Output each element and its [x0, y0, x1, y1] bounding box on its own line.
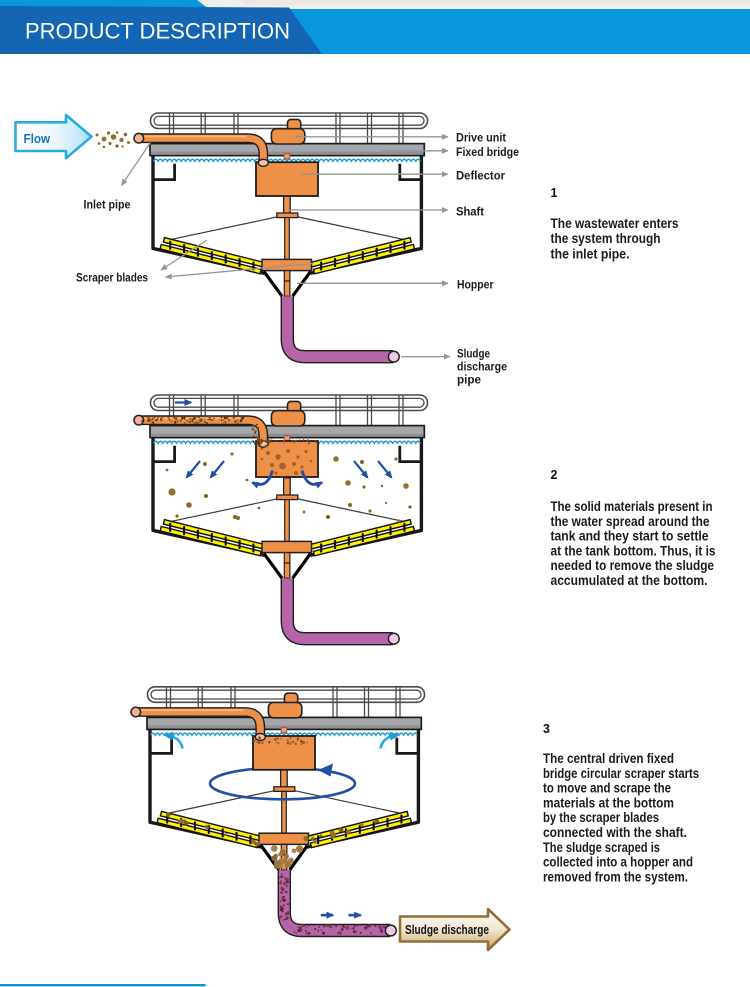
svg-text:The central driven fixed: The central driven fixed	[543, 751, 674, 766]
svg-text:at the tank bottom. Thus, it i: at the tank bottom. Thus, it is	[551, 543, 716, 558]
svg-text:Inlet pipe: Inlet pipe	[84, 197, 131, 211]
svg-text:the inlet pipe.: the inlet pipe.	[551, 246, 630, 261]
svg-text:Scraper blades: Scraper blades	[76, 270, 148, 284]
svg-text:discharge: discharge	[457, 360, 507, 374]
svg-text:The sludge scraped is: The sludge scraped is	[543, 840, 660, 855]
svg-text:collected into a hopper and: collected into a hopper and	[543, 855, 693, 870]
svg-text:Sludge: Sludge	[457, 347, 490, 361]
svg-text:Hopper: Hopper	[457, 278, 494, 292]
svg-text:1: 1	[551, 186, 558, 200]
svg-text:bridge circular scraper starts: bridge circular scraper starts	[543, 766, 699, 781]
svg-text:removed from the system.: removed from the system.	[543, 869, 688, 884]
svg-text:3: 3	[543, 722, 550, 736]
svg-text:2: 2	[551, 468, 558, 482]
svg-text:The wastewater enters: The wastewater enters	[551, 216, 679, 231]
svg-text:the water spread around the: the water spread around the	[551, 514, 710, 529]
svg-text:Shaft: Shaft	[456, 205, 484, 219]
svg-text:tank and they start to settle: tank and they start to settle	[551, 529, 709, 544]
svg-text:pipe: pipe	[457, 373, 481, 387]
svg-text:by the scraper blades: by the scraper blades	[543, 810, 659, 825]
svg-text:Deflector: Deflector	[456, 168, 505, 182]
svg-text:materials at the bottom: materials at the bottom	[543, 795, 674, 810]
svg-text:to move and scrape the: to move and scrape the	[543, 781, 671, 796]
svg-text:Drive unit: Drive unit	[456, 131, 506, 145]
svg-text:Sludge discharge: Sludge discharge	[405, 923, 489, 937]
svg-text:the system through: the system through	[551, 231, 661, 246]
svg-text:needed to remove the sludge: needed to remove the sludge	[551, 558, 715, 573]
svg-text:Fixed bridge: Fixed bridge	[456, 145, 519, 159]
svg-text:PRODUCT DESCRIPTION: PRODUCT DESCRIPTION	[25, 19, 290, 44]
svg-text:Flow: Flow	[24, 132, 51, 146]
svg-text:connected with the shaft.: connected with the shaft.	[543, 825, 687, 840]
svg-text:The solid materials present in: The solid materials present in	[551, 499, 713, 514]
svg-text:accumulated at the bottom.: accumulated at the bottom.	[551, 573, 708, 588]
